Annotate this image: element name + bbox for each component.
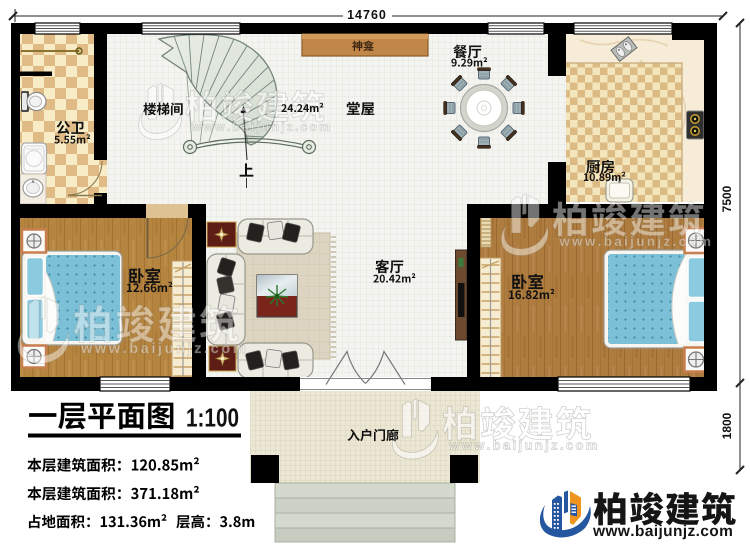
svg-text:1:100: 1:100 (186, 403, 239, 433)
svg-text:1800: 1800 (720, 412, 734, 439)
svg-text:14760: 14760 (347, 8, 387, 22)
svg-text:7500: 7500 (720, 185, 734, 212)
